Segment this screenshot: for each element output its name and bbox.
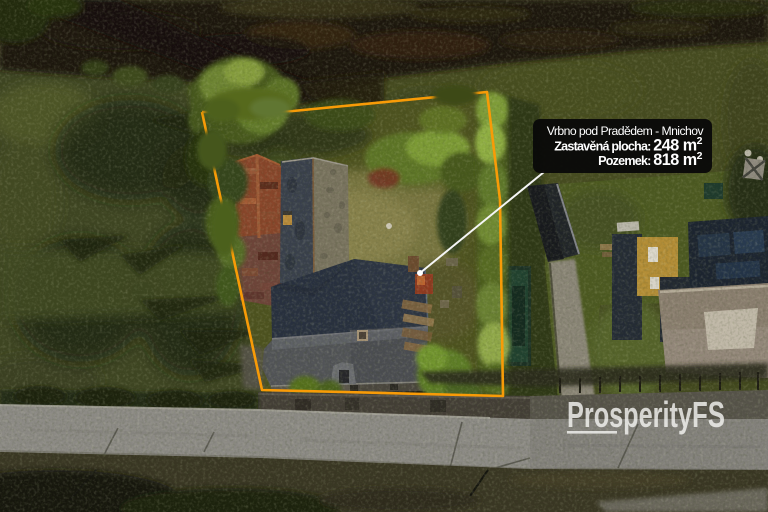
- svg-text:Prosperity: Prosperity: [567, 394, 692, 435]
- svg-text:FS: FS: [692, 394, 725, 435]
